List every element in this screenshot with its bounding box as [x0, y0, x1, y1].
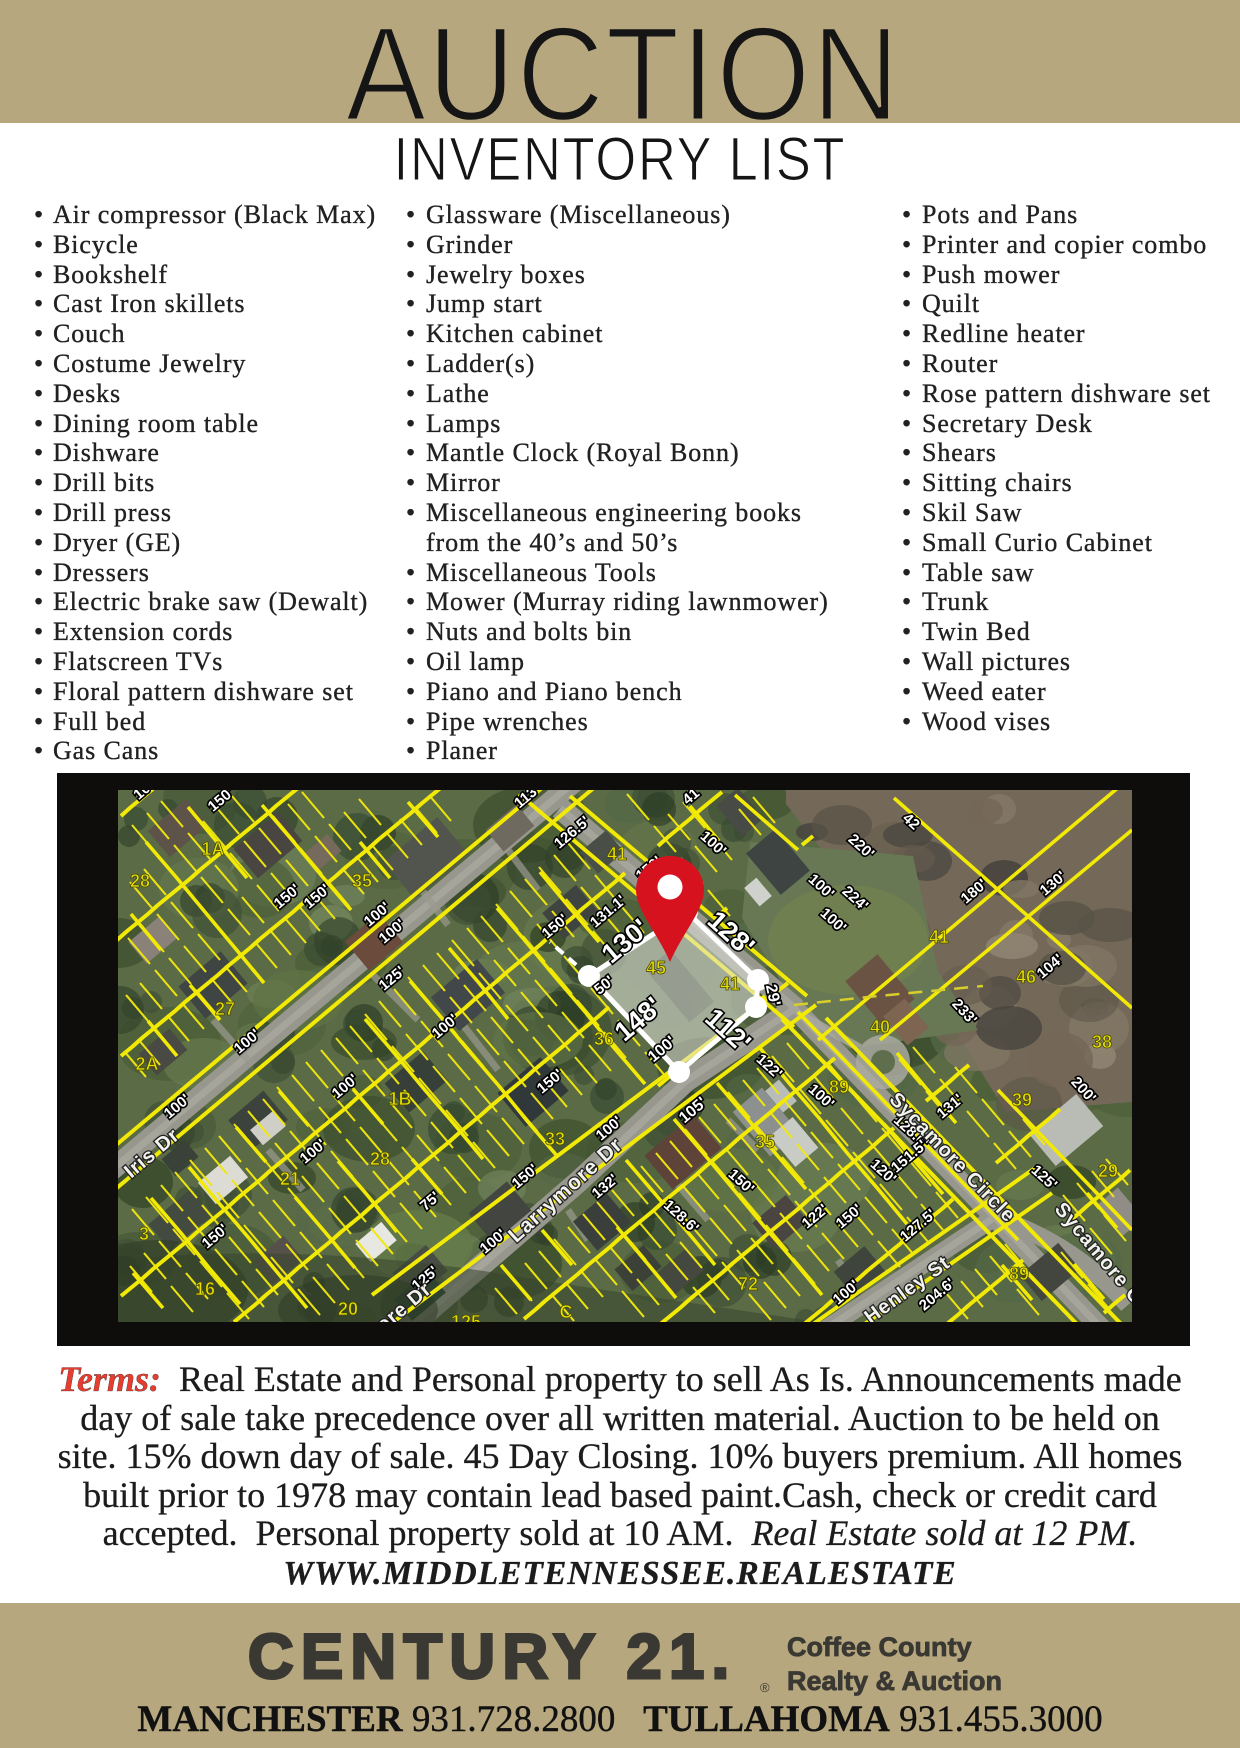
svg-text:3: 3 [139, 1224, 149, 1244]
svg-text:20: 20 [338, 1299, 358, 1319]
svg-text:72: 72 [738, 1274, 758, 1294]
svg-text:46: 46 [1016, 967, 1036, 987]
svg-text:2A: 2A [135, 1054, 158, 1074]
svg-text:C: C [560, 1302, 573, 1322]
svg-text:27: 27 [215, 999, 235, 1019]
svg-text:1A: 1A [201, 839, 224, 859]
svg-text:28: 28 [130, 871, 150, 891]
svg-text:29: 29 [1098, 1161, 1118, 1181]
svg-text:40: 40 [870, 1017, 890, 1037]
svg-text:33: 33 [545, 1129, 565, 1149]
svg-text:41: 41 [720, 974, 740, 994]
svg-text:35: 35 [755, 1132, 775, 1152]
svg-text:36: 36 [594, 1029, 614, 1049]
svg-text:45: 45 [646, 958, 666, 978]
svg-text:125: 125 [451, 1312, 481, 1322]
svg-text:41: 41 [929, 927, 949, 947]
svg-text:89: 89 [1009, 1264, 1029, 1284]
svg-text:35: 35 [352, 871, 372, 891]
svg-text:28: 28 [370, 1149, 390, 1169]
svg-text:39: 39 [1012, 1090, 1032, 1110]
svg-text:38: 38 [1092, 1032, 1112, 1052]
svg-text:1B: 1B [388, 1089, 411, 1109]
svg-text:21: 21 [280, 1169, 300, 1189]
svg-text:16: 16 [195, 1279, 215, 1299]
svg-text:41: 41 [607, 844, 627, 864]
svg-text:89: 89 [829, 1077, 849, 1097]
